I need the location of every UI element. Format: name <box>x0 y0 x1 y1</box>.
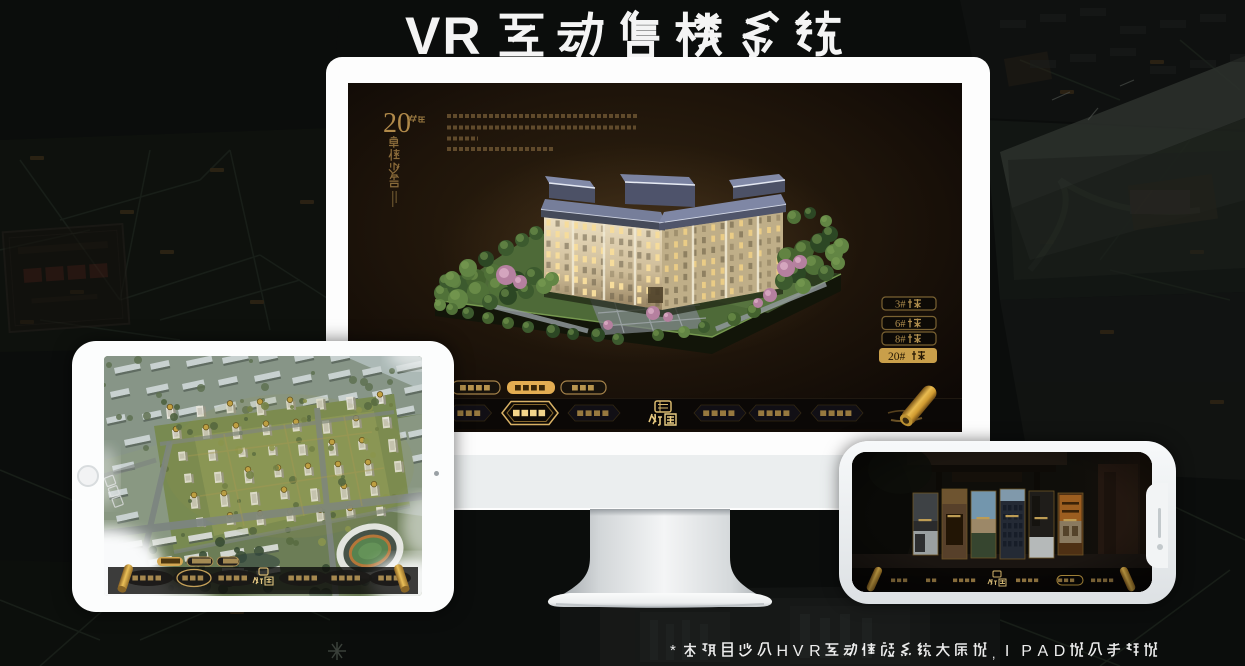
svg-text:VR: VR <box>405 7 483 58</box>
svg-text:V: V <box>793 643 804 660</box>
svg-text:P: P <box>1021 643 1032 660</box>
svg-text:D: D <box>1054 643 1066 660</box>
svg-text:I: I <box>1005 643 1009 660</box>
svg-text:R: R <box>809 643 821 660</box>
svg-text:H: H <box>777 643 789 660</box>
svg-text:*: * <box>670 642 676 659</box>
svg-text:,: , <box>992 646 996 661</box>
svg-text:8#: 8# <box>895 335 906 346</box>
svg-text:20: 20 <box>383 108 411 139</box>
svg-text:6#: 6# <box>895 319 906 330</box>
svg-text:3#: 3# <box>895 300 906 311</box>
svg-text:A: A <box>1038 643 1049 660</box>
svg-text:20#: 20# <box>888 351 906 363</box>
